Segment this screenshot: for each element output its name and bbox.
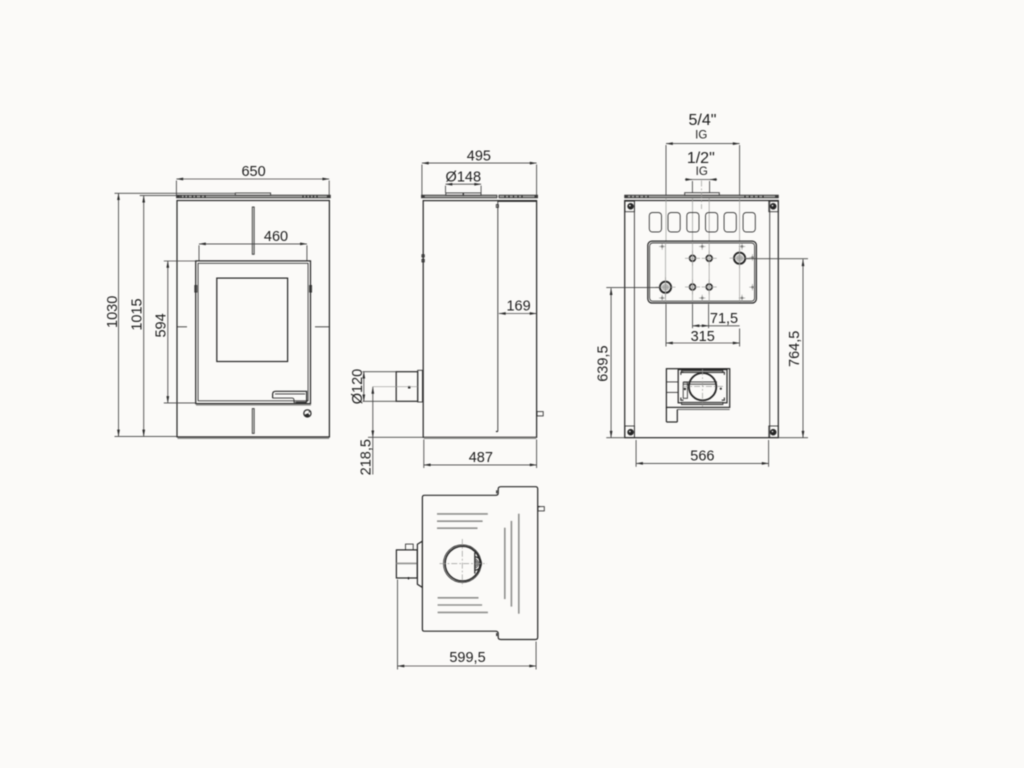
svg-text:594: 594 [154, 313, 170, 337]
svg-text:218,5: 218,5 [359, 439, 375, 475]
svg-text:566: 566 [690, 448, 714, 464]
svg-text:IG: IG [696, 166, 708, 178]
svg-text:495: 495 [467, 148, 491, 164]
svg-text:1030: 1030 [105, 296, 121, 328]
svg-text:650: 650 [241, 164, 265, 180]
svg-text:764,5: 764,5 [787, 331, 803, 367]
svg-text:71,5: 71,5 [710, 311, 738, 327]
svg-text:169: 169 [506, 299, 530, 315]
svg-text:1/2": 1/2" [687, 150, 715, 167]
svg-text:599,5: 599,5 [449, 650, 485, 666]
svg-text:460: 460 [264, 229, 288, 245]
svg-text:315: 315 [691, 329, 715, 345]
svg-text:Ø120: Ø120 [350, 369, 366, 404]
svg-text:487: 487 [469, 450, 493, 466]
svg-text:5/4": 5/4" [689, 112, 717, 129]
svg-text:1015: 1015 [130, 298, 146, 330]
svg-text:IG: IG [695, 130, 707, 142]
svg-text:Ø148: Ø148 [446, 169, 481, 185]
svg-text:639,5: 639,5 [595, 345, 611, 381]
